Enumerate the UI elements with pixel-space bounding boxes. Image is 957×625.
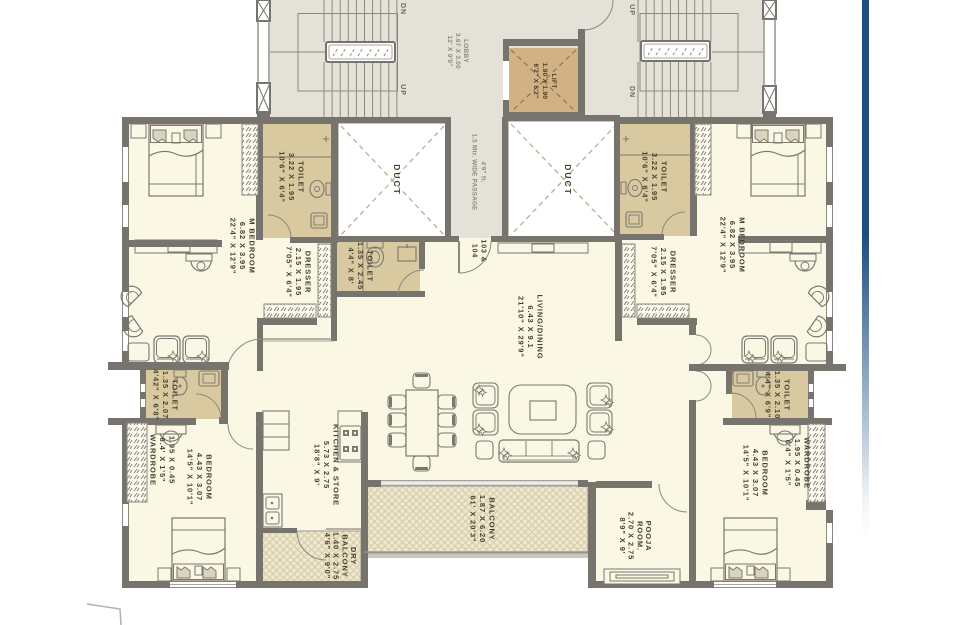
svg-text:1.95 X 0.456.4' X 1'5"WARDROBE: 1.95 X 0.456.4' X 1'5"WARDROBE [149,434,177,486]
svg-text:UP: UP [628,4,635,16]
svg-text:BALCONY1.87 X 6.2061' X 20'3": BALCONY1.87 X 6.2061' X 20'3" [469,495,497,543]
svg-text:BEDROOM4.43 X 3.0714'5" X 10'1: BEDROOM4.43 X 3.0714'5" X 10'1" [186,449,214,506]
svg-text:BEDROOM4.43 X 3.0714'5" X 10'1: BEDROOM4.43 X 3.0714'5" X 10'1" [742,445,770,502]
svg-text:M BEDROOM6.82 X 3.9522'4" X 12: M BEDROOM6.82 X 3.9522'4" X 12'9" [719,217,747,274]
svg-text:WARDROBE1.95 X 0.456'4" X 1'5": WARDROBE1.95 X 0.456'4" X 1'5" [784,437,812,489]
svg-text:UP: UP [399,84,406,96]
svg-text:DRESSER2.15 X 1.957'05" X 6'4": DRESSER2.15 X 1.957'05" X 6'4" [650,246,678,298]
svg-text:DUCT: DUCT [392,164,402,196]
svg-text:DRESSER2.15 X 1.957'05" X 6'4": DRESSER2.15 X 1.957'05" X 6'4" [285,246,313,298]
svg-text:M BEDROOM6.82 X 3.9522'4" X 12: M BEDROOM6.82 X 3.9522'4" X 12'9" [229,218,257,275]
svg-text:DUCT: DUCT [563,164,573,196]
svg-text:DN: DN [399,3,406,15]
svg-text:DN: DN [628,86,635,98]
